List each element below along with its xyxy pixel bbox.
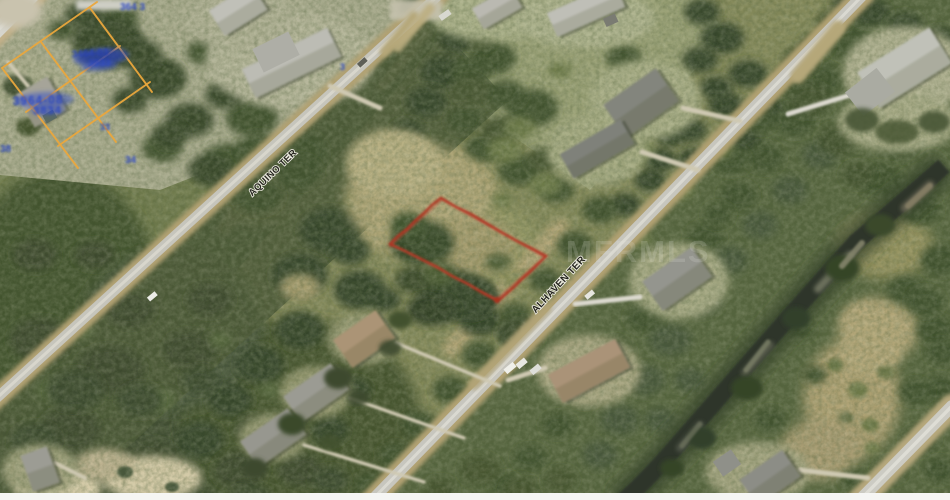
svg-text:34: 34: [125, 155, 137, 166]
svg-text:3: 3: [340, 62, 345, 72]
svg-text:364 3: 364 3: [120, 2, 145, 13]
svg-text:33: 33: [100, 122, 110, 132]
svg-text:MFRMLS: MFRMLS: [566, 234, 711, 269]
svg-text:38: 38: [0, 144, 12, 155]
